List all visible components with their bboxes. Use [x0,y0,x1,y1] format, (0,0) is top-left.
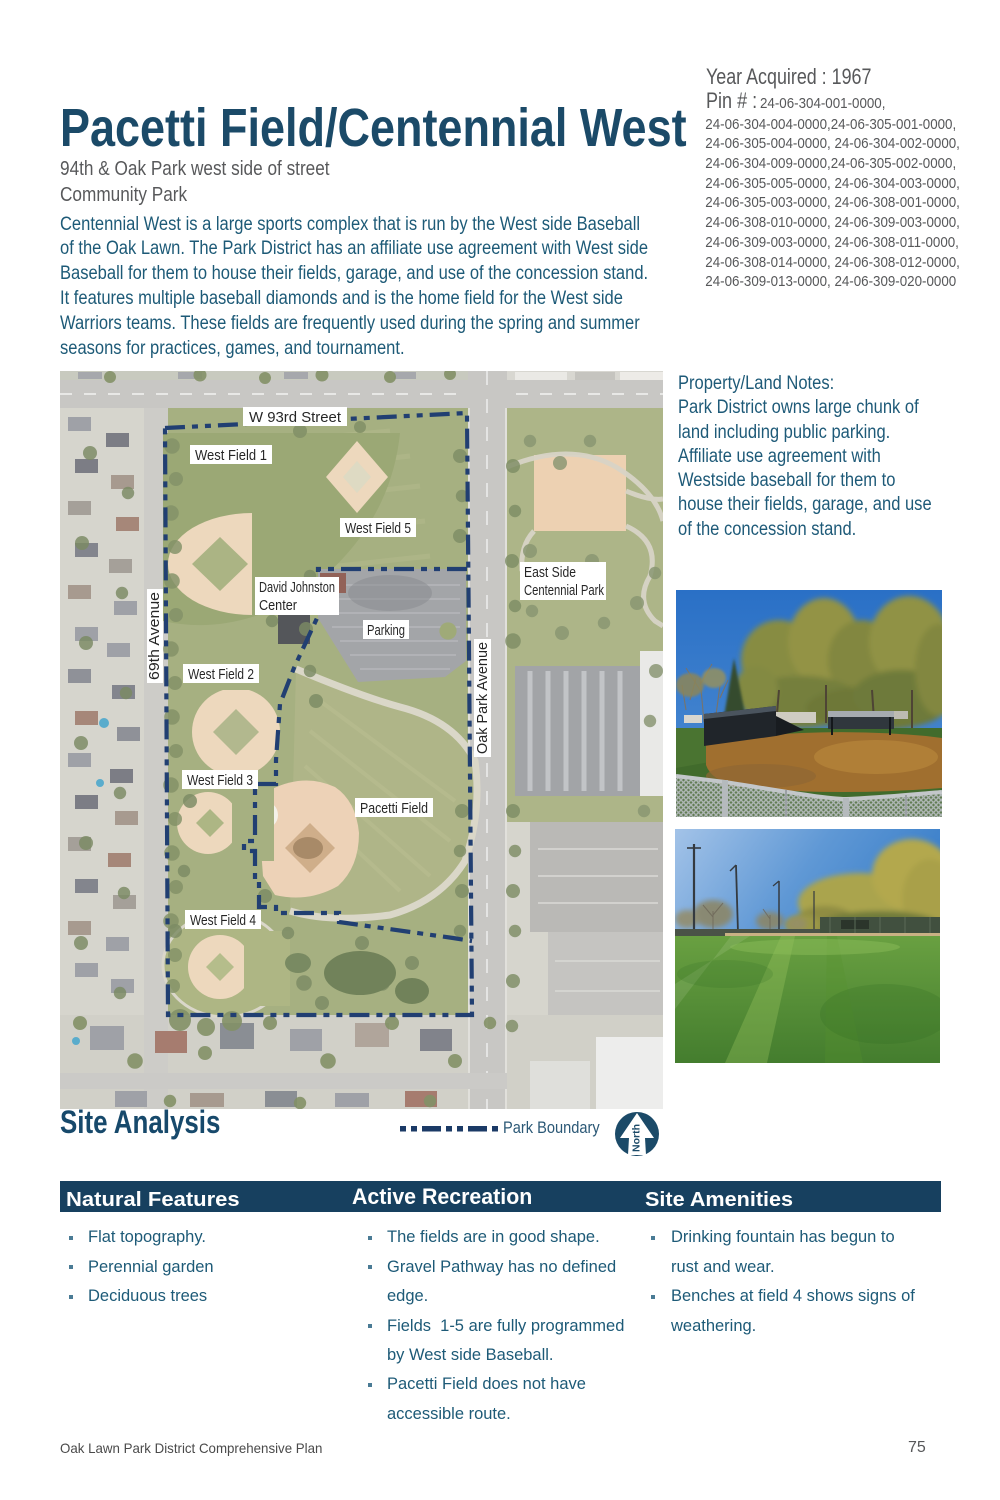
svg-text:North: North [632,1124,643,1152]
